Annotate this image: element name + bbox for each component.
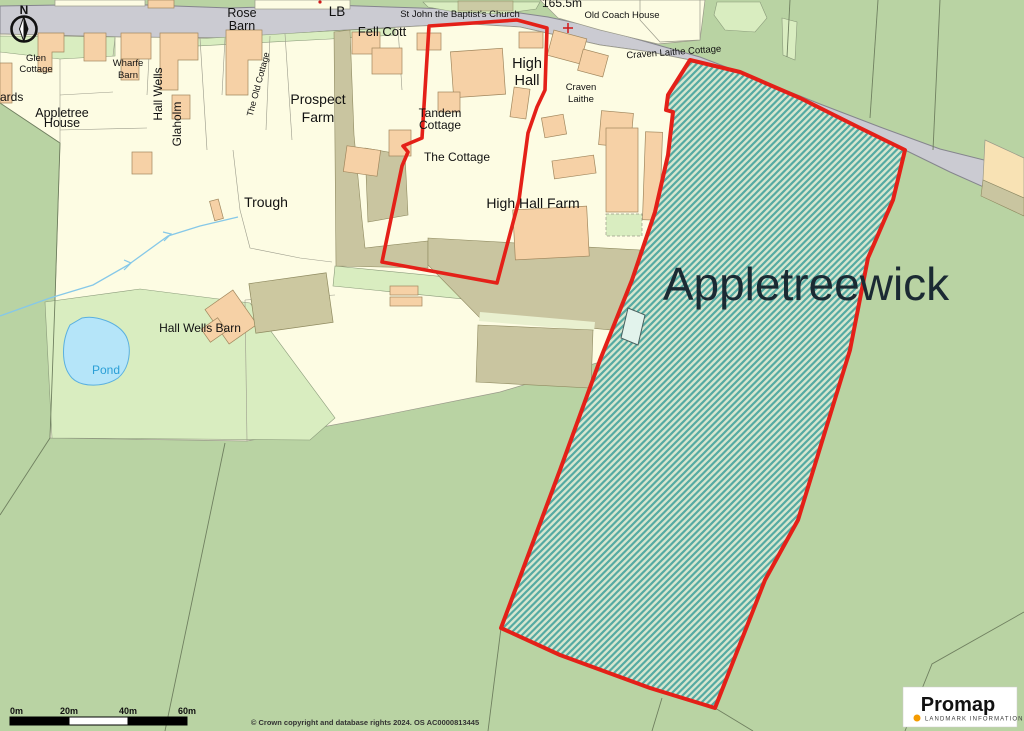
scale-0m: 0m — [10, 706, 23, 716]
lb: LB — [329, 4, 346, 19]
appletreewick: Appletreewick — [663, 258, 950, 310]
map-canvas[interactable]: NRoseBarnLBSt John the Baptist's Church1… — [0, 0, 1024, 731]
tandem-cottage: TandemCottage — [419, 106, 462, 132]
high-hall: HighHall — [512, 56, 542, 89]
promap-brand: Promap — [921, 694, 995, 716]
red-dot-marker — [318, 0, 321, 3]
scale-20m: 20m — [60, 706, 78, 716]
promap-tagline: LANDMARK INFORMATION — [925, 717, 1024, 723]
high-hall-farm: High Hall Farm — [486, 195, 579, 211]
hall-wells-barn: Hall Wells Barn — [159, 321, 241, 335]
scale-60m: 60m — [178, 706, 196, 716]
promap-logo-dot — [914, 715, 921, 722]
craven-laithe: CravenLaithe — [566, 82, 597, 105]
rose-barn: RoseBarn — [227, 6, 256, 33]
pond: Pond — [92, 363, 120, 377]
glaholm: Glaholm — [170, 102, 184, 147]
ards: ards — [0, 90, 23, 104]
spot-height: 165.5m — [542, 0, 582, 10]
fell-cott: Fell Cott — [358, 24, 407, 39]
copyright: © Crown copyright and database rights 20… — [251, 718, 479, 727]
compass-n: N — [20, 3, 29, 17]
scale-40m: 40m — [119, 706, 137, 716]
the-cottage: The Cottage — [424, 150, 490, 164]
hall-wells: Hall Wells — [151, 67, 165, 120]
old-coach-house: Old Coach House — [585, 10, 660, 21]
map-svg: NRoseBarnLBSt John the Baptist's Church1… — [0, 0, 1024, 731]
st-john-church: St John the Baptist's Church — [400, 9, 520, 20]
trough: Trough — [244, 194, 288, 210]
scale-bar — [10, 717, 187, 725]
